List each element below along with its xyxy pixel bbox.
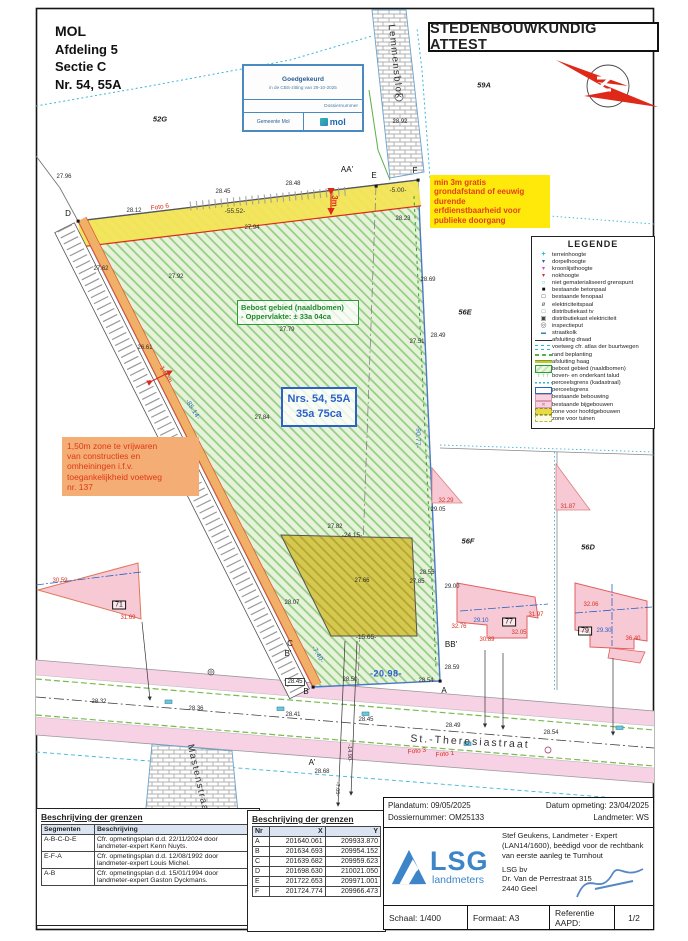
signature: [571, 861, 649, 903]
rect-bijgebouw-icon: ✕: [535, 401, 552, 408]
table-cell: 209966.473: [325, 887, 380, 897]
legend-label: nokhoogte: [552, 273, 579, 279]
legend-item: ◎inspectieput: [535, 322, 651, 329]
legend-label: perceelsgrens: [552, 387, 588, 393]
legend-label: boven- en onderkant talud: [552, 373, 619, 379]
table-cell: Cfr. opmetingsplan d.d. 15/01/1994 door …: [95, 869, 255, 886]
table-cell: C: [253, 857, 270, 867]
expert-line1: Stef Geukens, Landmeter - Expert: [502, 831, 649, 841]
legend-label: voetweg cfr. atlas der buurtwegen: [552, 344, 639, 350]
afdeling: Afdeling 5: [55, 41, 122, 59]
lsg-logo-subtext: landmeters: [432, 875, 489, 886]
legend-label: distributiekast elektriciteit: [552, 316, 616, 322]
legend-item: ▾dorpelhoogte: [535, 258, 651, 265]
legend-item: afsluiting haag: [535, 358, 651, 365]
legend-item: ■bestaande betonpaal: [535, 287, 651, 294]
rect-tuin-icon: [535, 415, 552, 422]
sectie: Sectie C: [55, 58, 122, 76]
column-header: Beschrijving: [95, 825, 255, 835]
legend-label: bestaande bebouwing: [552, 394, 609, 400]
column-header: X: [270, 827, 325, 837]
legend-label: distributiekast tv: [552, 309, 594, 315]
expert-line3: van eerste aanleg te Turnhout: [502, 851, 649, 861]
line-draad-icon: [535, 336, 552, 344]
table-cell: Cfr. opmetingsplan d.d. 22/11/2024 door …: [95, 835, 255, 852]
survey-plan-page: 52G59A56E56F56DLemmensblokMastenstraatSt…: [0, 0, 688, 941]
legend-item: perceelsgrens (kadastraal): [535, 380, 651, 387]
table-row: C201639.682209959.623: [253, 857, 381, 867]
coords-table-title: Beschrijving der grenzen: [252, 814, 381, 824]
stamp-approved-label: Goedgekeurd: [282, 76, 324, 83]
table-cell: F: [253, 887, 270, 897]
approval-stamp: Goedgekeurd in de CBS-zitting van 29-10-…: [242, 64, 364, 132]
lsg-logo: LSG landmeters: [388, 831, 500, 902]
note-clearance-zone: 1,50m zone te vrijwaren van constructies…: [62, 437, 199, 496]
table-cell: 209933.870: [325, 837, 380, 847]
mol-logo-icon: [320, 118, 328, 126]
dossier-number: Dossiernummer: OM25133: [388, 812, 484, 824]
legend-label: afsluiting draad: [552, 337, 591, 343]
legend-item: ▬straatkolk: [535, 330, 651, 337]
line-beplanting-icon: [535, 351, 552, 359]
lsg-logo-icon: [388, 847, 430, 887]
legend-label: niet gematerialiseerd grenspunt: [552, 280, 633, 286]
table-cell: 210021.050: [325, 867, 380, 877]
line-voetweg-icon: [535, 345, 552, 350]
legend-item: ▾kroonlijsthoogte: [535, 265, 651, 272]
table-row: E201722.653209971.001: [253, 877, 381, 887]
format-field: Formaat: A3: [468, 906, 550, 929]
rect-hoofdgebouw-icon: [535, 408, 552, 415]
legend: LEGENDE +terreinhoogte▾dorpelhoogte▾kroo…: [531, 236, 655, 429]
scale-field: Schaal: 1/400: [384, 906, 468, 929]
legend-label: bestaande fenopaal: [552, 294, 603, 300]
legend-item: ▣distributiekast elektriciteit: [535, 315, 651, 322]
boundaries-description-panel: Beschrijving der grenzen SegmentenBeschr…: [36, 808, 260, 926]
legend-item: □bestaande fenopaal: [535, 294, 651, 301]
legend-label: bebost gebied (naaldbomen): [552, 366, 626, 372]
mol-logo-text: mol: [330, 117, 346, 127]
parcel-area-label: Nrs. 54, 55A 35a 75ca: [281, 387, 357, 427]
parcel-id-block: MOL Afdeling 5 Sectie C Nr. 54, 55A: [55, 22, 122, 94]
table-cell: 201724.774: [270, 887, 325, 897]
legend-item: ✕bestaande bijgebouwen: [535, 401, 651, 408]
table-row: A-BCfr. opmetingsplan d.d. 15/01/1994 do…: [42, 869, 255, 886]
legend-label: afsluiting haag: [552, 359, 589, 365]
legend-item: ○niet gematerialiseerd grenspunt: [535, 280, 651, 287]
table-row: F201724.774209966.473: [253, 887, 381, 897]
table-row: D201698.630210021.050: [253, 867, 381, 877]
segments-table-title: Beschrijving der grenzen: [41, 812, 255, 822]
legend-label: kroonlijsthoogte: [552, 266, 593, 272]
table-cell: D: [253, 867, 270, 877]
table-cell: 201634.693: [270, 847, 325, 857]
table-cell: 201722.653: [270, 877, 325, 887]
legend-items: +terreinhoogte▾dorpelhoogte▾kroonlijstho…: [535, 251, 651, 422]
legend-label: perceelsgrens (kadastraal): [552, 380, 621, 386]
column-header: Y: [325, 827, 380, 837]
rect-perceel-icon: [535, 387, 552, 394]
legend-label: straatkolk: [552, 330, 577, 336]
legend-item: afsluiting draad: [535, 337, 651, 344]
table-row: A-B-C-D-ECfr. opmetingsplan d.d. 22/11/2…: [42, 835, 255, 852]
document-title: STEDENBOUWKUNDIG ATTEST: [428, 22, 659, 52]
surveyor-initials: Landmeter: WS: [546, 812, 649, 824]
stamp-session-line: in de CBS-zitting van 29-10-2025: [269, 85, 337, 90]
parcel-area-line: 35a 75ca: [283, 407, 355, 422]
parcel-number: Nr. 54, 55A: [55, 76, 122, 94]
table-cell: A-B-C-D-E: [42, 835, 95, 852]
legend-label: terreinhoogte: [552, 252, 586, 258]
table-cell: 201640.061: [270, 837, 325, 847]
forest-area-line2: - Oppervlakte: ± 33a 04ca: [241, 312, 355, 321]
segments-table: SegmentenBeschrijvingA-B-C-D-ECfr. opmet…: [41, 824, 255, 886]
table-row: A201640.061209933.870: [253, 837, 381, 847]
stamp-gemeente-label: Gemeente Mol: [244, 113, 304, 130]
coordinates-table: NrXYA201640.061209933.870B201634.6932099…: [252, 826, 381, 897]
expert-line2: (LAN14/1600), beëdigd voor de rechtbank: [502, 841, 649, 851]
table-cell: 201639.682: [270, 857, 325, 867]
legend-title: LEGENDE: [535, 239, 651, 249]
legend-label: bestaande betonpaal: [552, 287, 606, 293]
table-cell: Cfr. opmetingsplan d.d. 12/08/1992 door …: [95, 852, 255, 869]
legend-item: rand beplanting: [535, 351, 651, 358]
legend-item: øelektriciteitspaal: [535, 301, 651, 308]
plan-date: Plandatum: 09/05/2025: [388, 800, 484, 812]
legend-item: +terreinhoogte: [535, 251, 651, 258]
line-haag-icon: [535, 360, 552, 363]
legend-label: bestaande bijgebouwen: [552, 402, 613, 408]
title-block: Plandatum: 09/05/2025 Dossiernummer: OM2…: [383, 797, 654, 930]
table-cell: 209954.152: [325, 847, 380, 857]
legend-item: zone voor tuinen: [535, 415, 651, 422]
forest-area-label: Bebost gebied (naaldbomen) - Oppervlakte…: [237, 300, 359, 325]
legend-item: □distributiekast tv: [535, 308, 651, 315]
coordinates-panel: Beschrijving der grenzen NrXYA201640.061…: [247, 810, 386, 932]
table-cell: A-B: [42, 869, 95, 886]
reference-field: Referentie AAPD:: [550, 906, 615, 929]
rect-bebouwing-icon: [535, 394, 552, 401]
legend-item: bebost gebied (naaldbomen): [535, 365, 651, 372]
note-servitude: min 3m gratis grondafstand of eeuwig dur…: [430, 175, 550, 228]
legend-label: inspectieput: [552, 323, 583, 329]
municipality: MOL: [55, 22, 122, 41]
column-header: Segmenten: [42, 825, 95, 835]
legend-item: bestaande bebouwing: [535, 394, 651, 401]
legend-item: voetweg cfr. atlas der buurtwegen: [535, 344, 651, 351]
table-row: E-F-ACfr. opmetingsplan d.d. 12/08/1992 …: [42, 852, 255, 869]
parcel-nrs-line: Nrs. 54, 55A: [283, 392, 355, 407]
table-cell: A: [253, 837, 270, 847]
table-cell: 201698.630: [270, 867, 325, 877]
legend-item: ⊤⊤⊤boven- en onderkant talud: [535, 372, 651, 379]
legend-item: ▾nokhoogte: [535, 272, 651, 279]
forest-area-line1: Bebost gebied (naaldbomen): [241, 303, 355, 312]
legend-label: rand beplanting: [552, 352, 592, 358]
legend-label: zone voor hoofdgebouwen: [552, 409, 620, 415]
table-cell: E-F-A: [42, 852, 95, 869]
table-row: B201634.693209954.152: [253, 847, 381, 857]
table-cell: B: [253, 847, 270, 857]
table-cell: E: [253, 877, 270, 887]
legend-label: elektriciteitspaal: [552, 302, 593, 308]
table-cell: 209959.623: [325, 857, 380, 867]
table-cell: 209971.001: [325, 877, 380, 887]
legend-item: perceelsgrens: [535, 387, 651, 394]
lsg-logo-text: LSG: [430, 848, 489, 875]
legend-label: dorpelhoogte: [552, 259, 586, 265]
page-indicator: 1/2: [615, 906, 653, 929]
survey-date: Datum opmeting: 23/04/2025: [546, 800, 649, 812]
legend-label: zone voor tuinen: [552, 416, 595, 422]
stamp-dossier-line: Dossiernummer: [244, 100, 362, 113]
column-header: Nr: [253, 827, 270, 837]
legend-item: zone voor hoofdgebouwen: [535, 408, 651, 415]
